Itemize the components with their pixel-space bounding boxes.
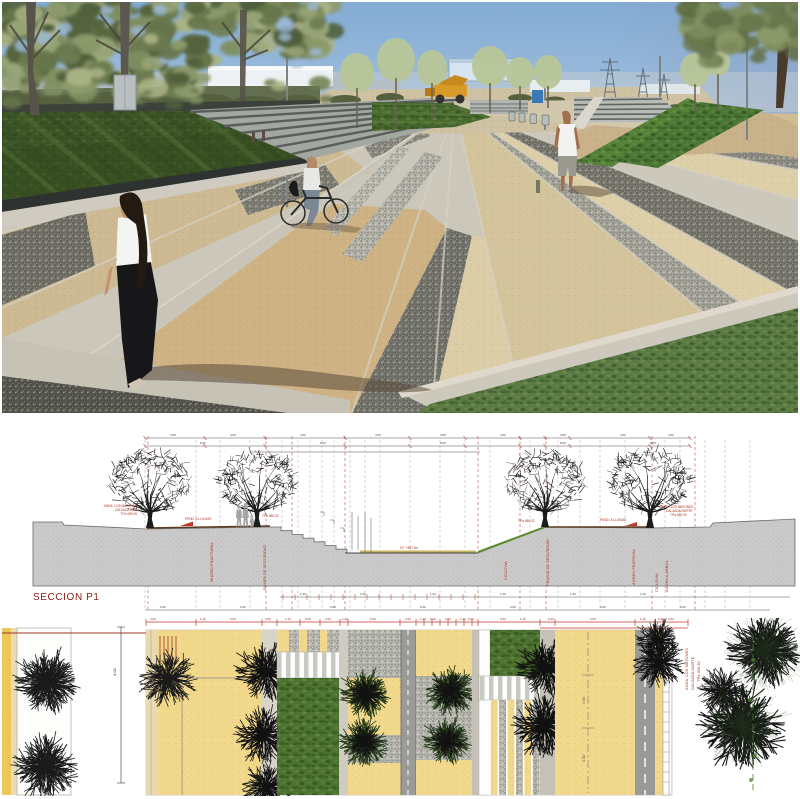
- svg-text:4.50: 4.50: [582, 697, 586, 704]
- svg-text:6.00: 6.00: [658, 617, 664, 621]
- svg-text:1.20: 1.20: [360, 592, 366, 596]
- svg-text:6.00: 6.00: [680, 605, 686, 609]
- svg-text:6.00: 6.00: [420, 605, 426, 609]
- svg-text:6.00: 6.00: [468, 617, 474, 621]
- svg-text:3.50: 3.50: [445, 617, 451, 621]
- svg-text:RAMPA DE SEGURIDAD: RAMPA DE SEGURIDAD: [262, 545, 267, 590]
- svg-text:6.00: 6.00: [600, 605, 606, 609]
- svg-text:4.50: 4.50: [300, 433, 306, 437]
- svg-text:4.00: 4.00: [112, 667, 117, 676]
- svg-text:1.20: 1.20: [520, 617, 526, 621]
- svg-text:TPa 499.30: TPa 499.30: [670, 513, 687, 517]
- svg-text:TPa 489.32: TPa 489.32: [518, 519, 535, 523]
- svg-text:CALZADA NORTE: CALZADA NORTE: [690, 656, 695, 690]
- svg-text:8.00: 8.00: [650, 441, 656, 445]
- svg-text:3.50: 3.50: [668, 617, 674, 621]
- svg-text:4.50: 4.50: [668, 433, 674, 437]
- svg-text:8.00: 8.00: [320, 441, 326, 445]
- svg-text:1.20: 1.20: [342, 617, 348, 621]
- svg-text:4.50: 4.50: [620, 433, 626, 437]
- svg-text:1.20: 1.20: [640, 592, 646, 596]
- svg-text:8.00: 8.00: [440, 441, 446, 445]
- svg-text:ANDEN A ARBOL: ANDEN A ARBOL: [664, 559, 669, 592]
- svg-text:4.50: 4.50: [440, 433, 446, 437]
- svg-text:PEND. A LLUVIAS: PEND. A LLUVIAS: [600, 518, 626, 522]
- svg-text:3.50: 3.50: [500, 617, 506, 621]
- svg-text:3.50: 3.50: [590, 617, 596, 621]
- svg-text:1.20: 1.20: [420, 617, 426, 621]
- svg-text:ANDEN PEATONAL: ANDEN PEATONAL: [631, 548, 636, 585]
- svg-text:6.00: 6.00: [240, 605, 246, 609]
- svg-text:SECCION P1: SECCION P1: [33, 592, 100, 603]
- svg-text:1.20: 1.20: [460, 617, 466, 621]
- svg-text:ANDA. LOS MATONES: ANDA. LOS MATONES: [684, 648, 689, 690]
- svg-text:3.50: 3.50: [150, 617, 156, 621]
- svg-text:3.50: 3.50: [405, 617, 411, 621]
- svg-text:3.50: 3.50: [265, 617, 271, 621]
- svg-text:6.00: 6.00: [510, 605, 516, 609]
- svg-text:4.50: 4.50: [582, 755, 586, 762]
- svg-text:6.00: 6.00: [548, 617, 554, 621]
- svg-text:CICLOVIA: CICLOVIA: [654, 573, 659, 592]
- svg-text:1.20: 1.20: [300, 592, 306, 596]
- svg-text:1.20: 1.20: [200, 617, 206, 621]
- svg-text:TPa 499.09: TPa 499.09: [121, 512, 138, 516]
- svg-text:TPa 499.30: TPa 499.30: [696, 661, 701, 682]
- svg-text:MUERO FRACTURAL: MUERO FRACTURAL: [209, 541, 214, 582]
- svg-text:4.50: 4.50: [170, 433, 176, 437]
- svg-text:1.20: 1.20: [570, 592, 576, 596]
- svg-text:4.50: 4.50: [375, 433, 381, 437]
- svg-text:6.00: 6.00: [370, 617, 376, 621]
- svg-text:6.00: 6.00: [160, 605, 166, 609]
- svg-text:1.20: 1.20: [285, 617, 291, 621]
- svg-text:4.50: 4.50: [230, 433, 236, 437]
- svg-text:PEND. A LLUVIAS: PEND. A LLUVIAS: [185, 517, 211, 521]
- svg-text:6.00: 6.00: [330, 605, 336, 609]
- svg-text:FRANJA DE SEGURIDAD: FRANJA DE SEGURIDAD: [545, 539, 550, 586]
- svg-text:3.50: 3.50: [325, 617, 331, 621]
- svg-text:CF. +487.2m: CF. +487.2m: [400, 546, 419, 550]
- svg-text:1.20: 1.20: [500, 592, 506, 596]
- svg-text:6.00: 6.00: [430, 617, 436, 621]
- svg-text:4.50: 4.50: [500, 433, 506, 437]
- svg-text:CICLOVIA: CICLOVIA: [503, 561, 508, 580]
- svg-text:6.00: 6.00: [305, 617, 311, 621]
- svg-text:TPa 489.32: TPa 489.32: [262, 514, 279, 518]
- svg-text:6.00: 6.00: [230, 617, 236, 621]
- svg-text:8.00: 8.00: [200, 441, 206, 445]
- svg-text:4.50: 4.50: [560, 433, 566, 437]
- svg-text:1.20: 1.20: [430, 592, 436, 596]
- svg-text:8.00: 8.00: [560, 441, 566, 445]
- svg-text:1.20: 1.20: [640, 617, 646, 621]
